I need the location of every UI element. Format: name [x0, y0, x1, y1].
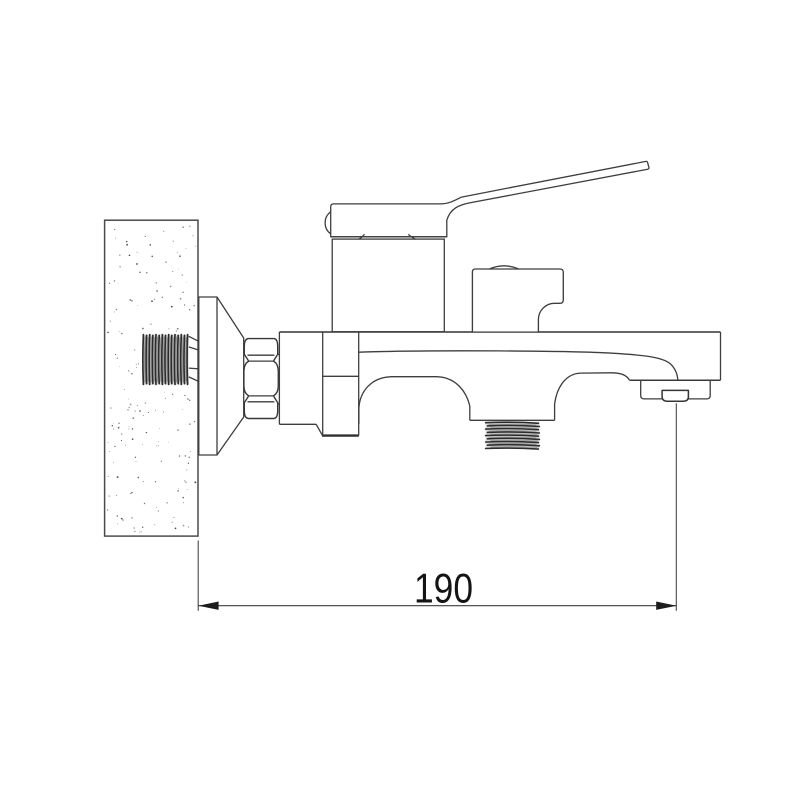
svg-text:190: 190: [414, 565, 473, 612]
